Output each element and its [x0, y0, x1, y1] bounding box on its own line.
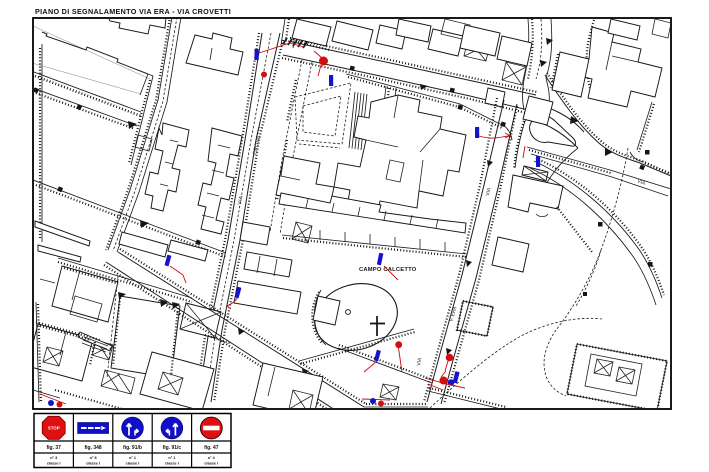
svg-text:n° 3: n° 3	[50, 456, 57, 460]
svg-text:fig. 91/b: fig. 91/b	[123, 445, 142, 451]
svg-text:classe I: classe I	[204, 462, 218, 466]
svg-text:fig. 91/c: fig. 91/c	[163, 445, 182, 451]
svg-text:n° 1: n° 1	[168, 456, 175, 460]
svg-text:fig. 348: fig. 348	[84, 445, 101, 451]
svg-text:classe I: classe I	[126, 462, 140, 466]
svg-text:fig. 47: fig. 47	[204, 445, 219, 451]
svg-text:classe I: classe I	[47, 462, 61, 466]
svg-text:n° 8: n° 8	[90, 456, 97, 460]
svg-text:n° 1: n° 1	[129, 456, 136, 460]
svg-text:classe I: classe I	[86, 462, 100, 466]
svg-text:classe I: classe I	[165, 462, 179, 466]
svg-text:STOP: STOP	[48, 426, 60, 431]
svg-text:PIANO DI SEGNALAMENTO VIA ERA: PIANO DI SEGNALAMENTO VIA ERA - VIA CROV…	[35, 7, 231, 16]
svg-text:fig. 37: fig. 37	[46, 445, 61, 451]
svg-text:n° 4: n° 4	[208, 456, 216, 460]
